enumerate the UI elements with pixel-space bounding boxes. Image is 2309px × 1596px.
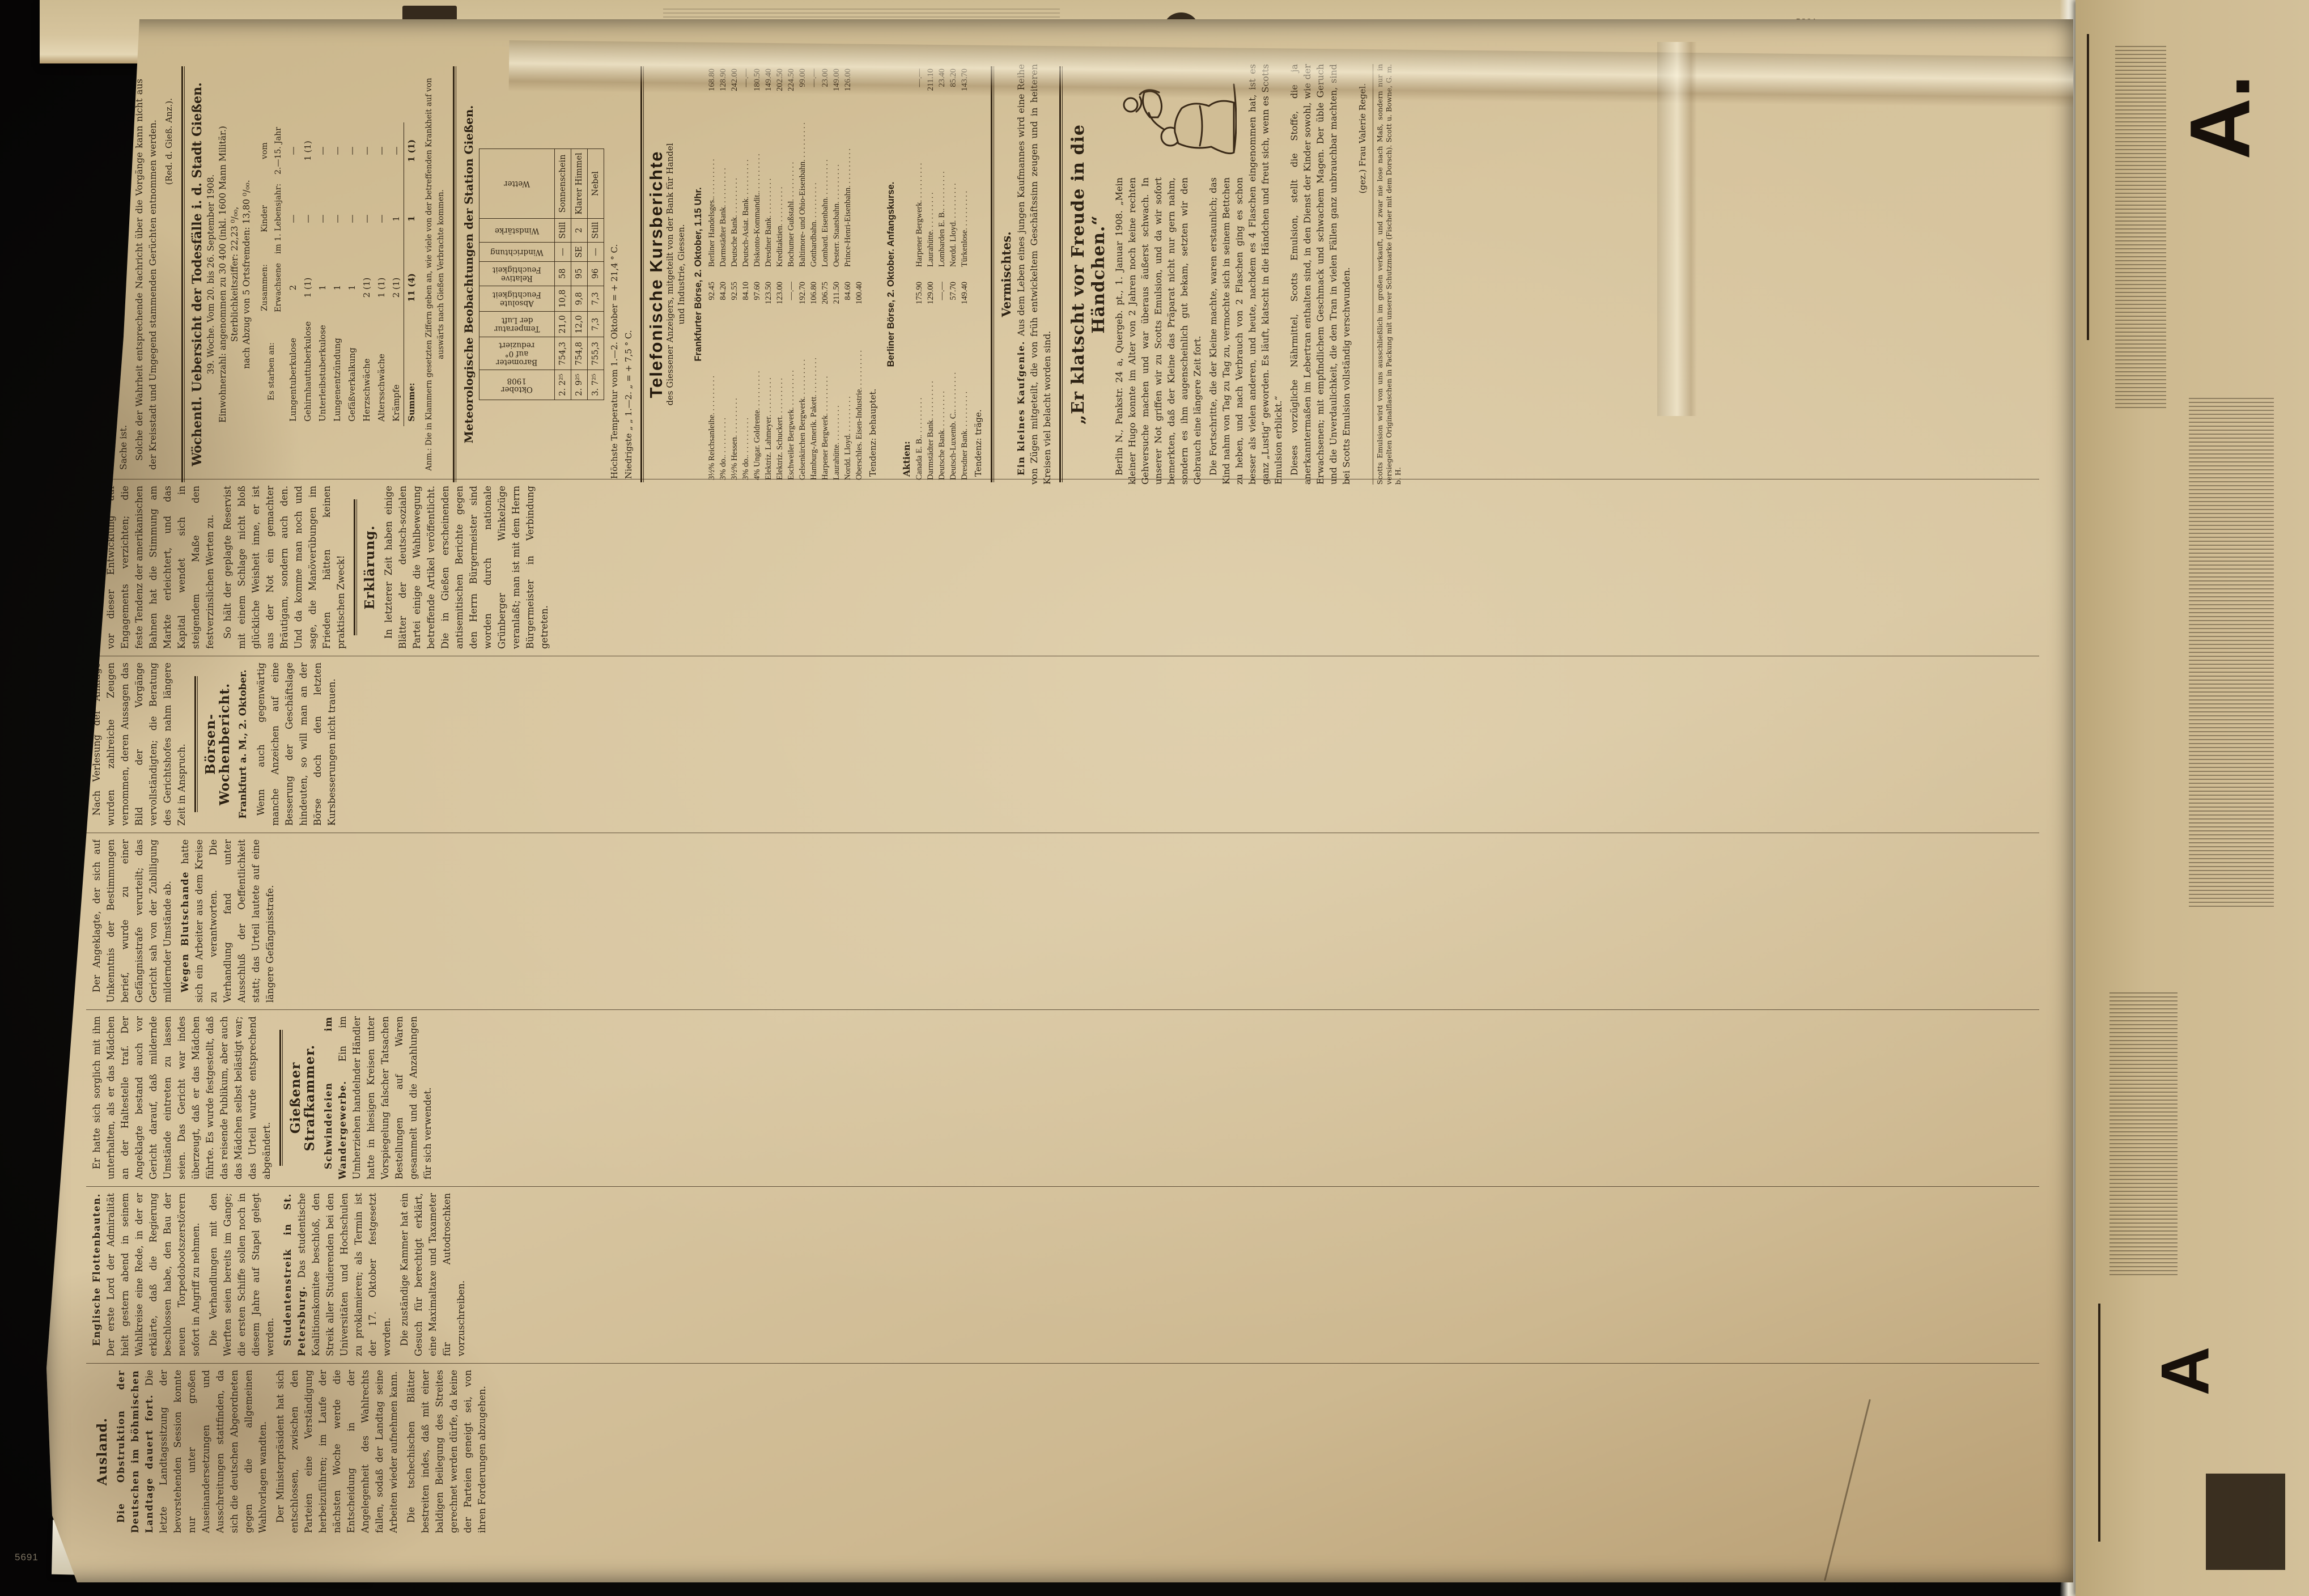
quote-name: Diskonto-Kommandit. bbox=[752, 193, 763, 267]
quote-value: 192.70 bbox=[797, 282, 808, 304]
todesfaelle-row: Gefäßverkalkung1—— bbox=[345, 122, 359, 426]
meteo-header-label: Temperatur der Luft bbox=[494, 316, 540, 333]
column-rule bbox=[86, 1363, 2039, 1364]
quote-name: Türkenlose bbox=[959, 230, 970, 267]
quote-value: —.— bbox=[808, 69, 820, 87]
meteo-cell: 10,8 bbox=[555, 286, 571, 311]
quote-value: —.— bbox=[936, 282, 948, 300]
article-paragraph: Die Verhandlungen mit den Werften seien … bbox=[206, 1193, 277, 1356]
meteo-cell: Still bbox=[555, 218, 571, 243]
quote-name: 4% Ungar. Goldrente bbox=[752, 410, 763, 480]
adjacent-page-right-edge: A. A bbox=[2075, 0, 2309, 1596]
quote-value: 149.00 bbox=[831, 69, 842, 91]
todesfaelle-cell: 2 (1) bbox=[359, 258, 374, 317]
ad-headline: „Er klatscht vor Freude in die Händchen.… bbox=[1068, 64, 1109, 485]
meteo-header-label: Barometer auf 0° reduziert bbox=[496, 341, 537, 366]
quote-dots: . . . . . . . . . . bbox=[948, 87, 959, 222]
todesfaelle-row: Altersschwäche1 (1)—— bbox=[374, 122, 389, 426]
newspaper-page: Ausland.Die Obstruktion der Deutschen im… bbox=[44, 19, 2073, 1582]
frankfurt-tendenz: Tendenz: behauptet. bbox=[866, 64, 880, 485]
quote-value: 57.70 bbox=[948, 282, 959, 300]
quote-value: 84.10 bbox=[740, 282, 752, 300]
kursberichte-subtitle: und Industrie, Giessen. bbox=[676, 64, 687, 485]
quote-name: Elektriz. Schuckert bbox=[774, 417, 786, 480]
meteo-cell: 9,8 bbox=[571, 286, 588, 311]
quote-dots: . . . . . . . . . . bbox=[959, 304, 970, 431]
meteo-row: 2. 2²⁵754,321,010,858—StillSonnenschein bbox=[555, 149, 571, 400]
ad-rule bbox=[2087, 34, 2089, 340]
quote-name: Nordd. Lloyd bbox=[842, 435, 854, 480]
quote-dots: . . . . . . . . . . bbox=[936, 87, 948, 211]
quote-value: 106.80 bbox=[808, 282, 820, 304]
quote-value: —.— bbox=[786, 282, 797, 300]
quote-name: Deutsch-Asiat. Bank bbox=[740, 198, 752, 267]
quote-row: Kreditaktien . . . . . . . . . .202.50 bbox=[774, 69, 786, 267]
meteo-cell: Klarer Himmel bbox=[571, 149, 588, 218]
page-content-rotated: Ausland.Die Obstruktion der Deutschen im… bbox=[50, 34, 2068, 1564]
quote-name: Baltimore- und Ohio-Eisenbahn bbox=[797, 162, 808, 267]
quote-row: Elektriz. Schuckert . . . . . . . . . .1… bbox=[774, 282, 786, 480]
block-divider bbox=[640, 66, 644, 482]
meteo-header-cell: Absolute Feuchtigkeit bbox=[479, 286, 555, 311]
quote-value: 123.00 bbox=[774, 282, 786, 304]
quote-row: Darmstädter Bank . . . . . . . . . .129.… bbox=[925, 282, 936, 480]
quote-value: 224.50 bbox=[786, 69, 797, 91]
quote-dots: . . . . . . . . . . bbox=[854, 304, 865, 389]
todesfaelle-row: Krämpfe2 (1)1— bbox=[389, 122, 404, 426]
block-divider bbox=[991, 66, 994, 482]
todesfaelle-footnote: Anm.: Die in Klammern gesetzten Ziffern … bbox=[423, 64, 447, 485]
todesfaelle-sum-cell: 11 (4) bbox=[404, 258, 419, 317]
quote-row: Baltimore- und Ohio-Eisenbahn . . . . . … bbox=[797, 69, 808, 267]
quote-row: Hamburg-Amerik. Pakett . . . . . . . . .… bbox=[808, 282, 820, 480]
meteo-cell: 21,0 bbox=[555, 312, 571, 337]
quote-value: 175.90 bbox=[914, 282, 925, 304]
meteo-cell: SE bbox=[571, 243, 588, 262]
quote-value: 168.80 bbox=[706, 69, 718, 91]
article-lead: Englische Flottenbauten. bbox=[91, 1193, 102, 1346]
article-paragraph: Wenn auch gegenwärtig manche Anzeichen a… bbox=[254, 663, 339, 826]
text-column-3: Er hatte sich sorglich mit ihm unterhalt… bbox=[90, 1016, 2035, 1179]
todesfaelle-cell: — bbox=[359, 179, 374, 258]
meteo-row: 2. 9²⁵754,812,09,895SE2Klarer Himmel bbox=[571, 149, 588, 400]
meteo-header-label: Windrichtung bbox=[490, 248, 544, 256]
quote-name: Lombard. Eisenbahn bbox=[820, 198, 831, 267]
quote-row: Deutsch-Luxemb. C. . . . . . . . . . .57… bbox=[948, 282, 959, 480]
quote-dots: . . . . . . . . . . bbox=[752, 91, 763, 193]
todesfaelle-table: Es starben an:Zusammen: ErwachseneKinder… bbox=[257, 122, 419, 426]
quote-row: Canada E. B. . . . . . . . . . .175.90 bbox=[914, 282, 925, 480]
quote-dots: . . . . . . . . . . bbox=[842, 91, 854, 188]
quote-dots: . . . . . . . . . . bbox=[820, 87, 831, 199]
section-heading: Gießener Strafkammer. bbox=[288, 1016, 317, 1179]
todesfaelle-cell: 1 (1) bbox=[300, 122, 315, 179]
column-rule bbox=[86, 656, 2039, 656]
column-rule bbox=[86, 833, 2039, 833]
quote-dots: . . . . . . . . . . bbox=[740, 87, 752, 199]
quote-dots: . . . . . . . . . . bbox=[948, 300, 959, 411]
article-paragraph: Englische Flottenbauten. Der erste Lord … bbox=[90, 1193, 203, 1356]
table-header-cell: vom 2.—15. Jahr bbox=[257, 122, 286, 179]
quote-value: 99.00 bbox=[797, 69, 808, 87]
quote-row: Dresdner Bank . . . . . . . . . .149.40 bbox=[959, 282, 970, 480]
meteo-cell: 7,3 bbox=[588, 312, 604, 337]
todesfaelle-meta-line: Sterblichkeitsziffer: 22,23 ⁰/₀₀, bbox=[229, 64, 241, 485]
column-rule bbox=[86, 1186, 2039, 1187]
todesfaelle-heading: Wöchentl. Uebersicht der Todesfälle i. d… bbox=[190, 64, 204, 485]
quote-value: 123.50 bbox=[763, 282, 774, 304]
meteo-cell: 58 bbox=[555, 261, 571, 286]
quote-row: Berliner Handelsges. . . . . . . . . . .… bbox=[706, 69, 718, 267]
todesfaelle-cell: — bbox=[315, 122, 330, 179]
quote-row: Harpener Bergwerk . . . . . . . . . .—.— bbox=[914, 69, 925, 267]
quote-name: Laurahütte bbox=[831, 444, 842, 480]
quote-row: Prince-Henri-Eisenbahn . . . . . . . . .… bbox=[842, 69, 854, 267]
block-divider bbox=[1059, 66, 1063, 482]
text-column-2: Englische Flottenbauten. Der erste Lord … bbox=[90, 1193, 2035, 1356]
article-paragraph: Studentenstreik in St. Petersburg. Das s… bbox=[281, 1193, 394, 1356]
quote-value: —.— bbox=[740, 69, 752, 87]
berlin-tendenz: Tendenz: träge. bbox=[971, 64, 985, 485]
berlin-quote-list: Canada E. B. . . . . . . . . . .175.90Da… bbox=[914, 64, 970, 485]
meteo-header-cell: Relative Feuchtigkeit bbox=[479, 261, 555, 286]
article-lead: Wegen Blutschande bbox=[180, 864, 190, 993]
quote-name: 3½% Reichsanleihe bbox=[706, 415, 718, 480]
meteo-header-label: Absolute Feuchtigkeit bbox=[493, 290, 541, 307]
quote-row: Diskonto-Kommandit. . . . . . . . . . .1… bbox=[752, 69, 763, 267]
quote-dots: . . . . . . . . . . bbox=[706, 300, 718, 415]
quote-row: 3½% Reichsanleihe . . . . . . . . . .92.… bbox=[706, 282, 718, 480]
quote-name: Oberschles. Eisen-Industrie bbox=[854, 389, 865, 480]
todesfaelle-cell: — bbox=[300, 179, 315, 258]
quote-name: 3% do. bbox=[740, 457, 752, 480]
meteo-summary-line: Niedrigste „ „ 1.—2. „ = + 7,5 ° C. bbox=[623, 70, 635, 479]
quote-value: 211.10 bbox=[925, 69, 936, 91]
quote-dots: . . . . . . . . . . bbox=[936, 300, 948, 430]
quote-dots: . . . . . . . . . . bbox=[774, 304, 786, 417]
article-paragraph: Die tschechischen Blätter bestreiten ind… bbox=[404, 1370, 489, 1533]
text-column-1: Ausland.Die Obstruktion der Deutschen im… bbox=[90, 1370, 2035, 1533]
quote-value: 242.00 bbox=[729, 69, 740, 91]
quote-dots: . . . . . . . . . . bbox=[797, 304, 808, 398]
todesfaelle-cell: — bbox=[374, 179, 389, 258]
todesfaelle-cell: Gehirnhauttuberkulose bbox=[300, 317, 315, 426]
table-header-cell: Es starben an: bbox=[257, 317, 286, 426]
quote-name: 3% do. bbox=[718, 457, 729, 480]
todesfaelle-cell: — bbox=[345, 179, 359, 258]
todesfaelle-cell: Herzschwäche bbox=[359, 317, 374, 426]
article-paragraph: Die Obstruktion der Deutschen im böhmisc… bbox=[114, 1370, 270, 1533]
todesfaelle-row: Lungenentzündung1—— bbox=[330, 122, 345, 426]
table-header-row: Es starben an:Zusammen: ErwachseneKinder… bbox=[257, 122, 286, 426]
quote-row: Elektriz. Lahmeyer . . . . . . . . . .12… bbox=[763, 282, 774, 480]
berlin-boerse-header: Berliner Börse, 2. Oktober. Anfangskurse… bbox=[884, 64, 898, 485]
article-paragraph: Er hatte sich sorglich mit ihm unterhalt… bbox=[90, 1016, 274, 1179]
quote-name: Berliner Handelsges. bbox=[706, 198, 718, 267]
section-heading: Ausland. bbox=[95, 1370, 109, 1533]
quote-dots: . . . . . . . . . . bbox=[786, 91, 797, 201]
frankfurt-boerse-header: Frankfurter Börse, 2. Oktober, 1.15 Uhr. bbox=[691, 64, 705, 485]
meteo-cell: 12,0 bbox=[571, 312, 588, 337]
kursberichte-subtitle: des Giessener Anzeigers, mitgeteilt von … bbox=[664, 64, 676, 485]
meteo-cell: 2. 2²⁵ bbox=[555, 370, 571, 400]
section-heading: Börsen-Wochenbericht. bbox=[203, 663, 232, 826]
quote-value: 211.50 bbox=[831, 282, 842, 304]
quote-value: 128.90 bbox=[718, 69, 729, 91]
quote-row: Dresdner Bank . . . . . . . . . .149.40 bbox=[763, 69, 774, 267]
erklaerung-paragraph: Solche der Wahrheit entsprechende Nachri… bbox=[133, 79, 160, 470]
todesfaelle-cell: Gefäßverkalkung bbox=[345, 317, 359, 426]
quote-name: Eschweiler Bergwerk bbox=[786, 409, 797, 480]
quote-name: Hamburg-Amerik. Pakett bbox=[808, 397, 820, 480]
quote-row: Oesterr. Staatsbahn . . . . . . . . . .1… bbox=[831, 69, 842, 267]
quote-name: Lombarden E. B. bbox=[936, 210, 948, 267]
quote-name: Gelsenkirchen Bergwerk bbox=[797, 398, 808, 480]
quote-dots: . . . . . . . . . . bbox=[718, 300, 729, 457]
quote-dots: . . . . . . . . . . bbox=[914, 304, 925, 437]
meteo-cell: 754,3 bbox=[555, 337, 571, 370]
erklaerung-signature: (Red. d. Gieß. Anz.). bbox=[162, 79, 176, 470]
aktien-label: Aktien: bbox=[900, 64, 914, 485]
quote-value: 149.40 bbox=[959, 282, 970, 304]
quote-value: —.— bbox=[914, 69, 925, 87]
todesfaelle-cell: Altersschwäche bbox=[374, 317, 389, 426]
section-divider bbox=[279, 1030, 283, 1166]
meteo-cell: 755,3 bbox=[588, 337, 604, 370]
article-paragraph: Die zuständige Kammer hat ein Gesuch für… bbox=[397, 1193, 468, 1356]
meteo-cell: 96 bbox=[588, 261, 604, 286]
quote-row: Laurahütte . . . . . . . . . .211.10 bbox=[925, 69, 936, 267]
quote-dots: . . . . . . . . . . bbox=[763, 91, 774, 218]
meteo-header-label: Relative Feuchtigkeit bbox=[493, 265, 541, 282]
todesfaelle-cell: — bbox=[315, 179, 330, 258]
quote-value: 126.00 bbox=[842, 69, 854, 91]
quote-name: Kreditaktien bbox=[774, 226, 786, 267]
quote-value: 23.40 bbox=[936, 69, 948, 87]
meteo-cell: 7,3 bbox=[588, 286, 604, 311]
quote-row: Deutsche Bank . . . . . . . . . .242.00 bbox=[729, 69, 740, 267]
todesfaelle-cell: — bbox=[286, 122, 300, 179]
table-header-cell: Zusammen: Erwachsene bbox=[257, 258, 286, 317]
quote-row: 4% Ungar. Goldrente . . . . . . . . . .9… bbox=[752, 282, 763, 480]
ad-rule bbox=[2098, 1304, 2100, 1542]
quote-row: Eschweiler Bergwerk . . . . . . . . . .—… bbox=[786, 282, 797, 480]
todesfaelle-sum-cell: Summe: bbox=[404, 317, 419, 426]
todesfaelle-sum-cell: 1 (1) bbox=[404, 122, 419, 179]
vermischtes-item: Ein kleines Kaufgenie. Aus dem Leben ein… bbox=[1015, 64, 1054, 485]
kursberichte-display-heading: Telefonische Kursberichte bbox=[650, 64, 663, 485]
todesfaelle-row: Unterleibstuberkulose1—— bbox=[315, 122, 330, 426]
todesfaelle-cell: — bbox=[330, 122, 345, 179]
quote-dots: . . . . . . . . . . bbox=[820, 304, 831, 415]
vermischtes-heading: Vermischtes. bbox=[1000, 64, 1013, 485]
quote-value: 180.50 bbox=[752, 69, 763, 91]
quote-dots: . . . . . . . . . . bbox=[925, 91, 936, 231]
quote-dots: . . . . . . . . . . bbox=[729, 300, 740, 438]
quote-row: Nordd. Lloyd . . . . . . . . . .85.20 bbox=[948, 69, 959, 267]
quote-name: Harpener Bergwerk bbox=[914, 202, 925, 267]
quote-value: 85.20 bbox=[948, 69, 959, 87]
article-lead: Schwindeleien im Wandergewerbe. bbox=[323, 1016, 348, 1179]
ad-microtext bbox=[2189, 397, 2274, 907]
quote-dots: . . . . . . . . . . bbox=[774, 91, 786, 226]
ad-big-letter-2: A bbox=[2146, 1347, 2224, 1396]
ad-body: Berlin N., Pankstr. 24 a, Quergeb. pt., … bbox=[1113, 64, 1353, 485]
quote-name: Darmstädter Bank bbox=[718, 207, 729, 267]
quote-name: Deutsch-Luxemb. C. bbox=[948, 411, 959, 480]
quote-value: 149.40 bbox=[763, 69, 774, 91]
quote-row: Gotthardbahn . . . . . . . . . .—.— bbox=[808, 69, 820, 267]
meteo-table: Oktober 1908Barometer auf 0° reduziertTe… bbox=[479, 148, 604, 400]
quote-row: Deutsche Bank . . . . . . . . . .—.— bbox=[936, 282, 948, 480]
meteo-cell: 2 bbox=[571, 218, 588, 243]
quote-dots: . . . . . . . . . . bbox=[925, 304, 936, 420]
quote-row: Darmstädter Bank . . . . . . . . . .128.… bbox=[718, 69, 729, 267]
quote-row: Türkenlose . . . . . . . . . .143.70 bbox=[959, 69, 970, 267]
meteo-header-cell: Windrichtung bbox=[479, 243, 555, 262]
quote-row: Lombard. Eisenbahn . . . . . . . . . .23… bbox=[820, 69, 831, 267]
quote-value: 206.75 bbox=[820, 282, 831, 304]
text-column-5: Nach Verlesung der Anklage wurden zahlre… bbox=[90, 663, 2035, 826]
quote-name: Elektriz. Lahmeyer bbox=[763, 417, 774, 480]
quote-value: 92.45 bbox=[706, 282, 718, 300]
todesfaelle-cell: — bbox=[374, 122, 389, 179]
text-column-4: Der Angeklagte, der sich auf Unkenntnis … bbox=[90, 839, 2035, 1003]
meteo-header-row: Oktober 1908Barometer auf 0° reduziertTe… bbox=[479, 149, 555, 400]
todesfaelle-meta-line: Einwohnerzahl: angenommen zu 30 400 (ink… bbox=[217, 64, 229, 485]
quote-dots: . . . . . . . . . . bbox=[797, 87, 808, 162]
ad-smallprint: Scotts Emulsion wird von uns ausschließl… bbox=[1373, 64, 1403, 485]
quote-row: Gelsenkirchen Bergwerk . . . . . . . . .… bbox=[797, 282, 808, 480]
todesfaelle-cell: 1 (1) bbox=[300, 258, 315, 317]
meteo-cell: 95 bbox=[571, 261, 588, 286]
meteo-header-cell: Windstärke bbox=[479, 218, 555, 243]
quote-row: 3% do. . . . . . . . . . .84.20 bbox=[718, 282, 729, 480]
quote-row: Bochumer Gußstahl . . . . . . . . . .224… bbox=[786, 69, 797, 267]
section-divider bbox=[354, 499, 357, 635]
todesfaelle-cell: Lungentuberkulose bbox=[286, 317, 300, 426]
column-rule bbox=[86, 1009, 2039, 1010]
quote-name: Oesterr. Staatsbahn bbox=[831, 203, 842, 267]
quote-name: Nordd. Lloyd bbox=[948, 222, 959, 267]
quote-dots: . . . . . . . . . . bbox=[729, 91, 740, 217]
todesfaelle-cell: 2 bbox=[286, 258, 300, 317]
todesfaelle-cell: 1 bbox=[345, 258, 359, 317]
quote-value: 143.70 bbox=[959, 69, 970, 91]
todesfaelle-sum-cell: 1 bbox=[404, 179, 419, 258]
text-column-6: Die treibenden Kräfte müssen vor dieser … bbox=[90, 486, 2035, 649]
quote-name: Dresdner Bank bbox=[763, 218, 774, 267]
quote-name: Deutsche Bank bbox=[936, 430, 948, 480]
quote-dots: . . . . . . . . . . bbox=[752, 300, 763, 410]
quote-name: Prince-Henri-Eisenbahn bbox=[842, 188, 854, 267]
block-divider bbox=[453, 66, 456, 482]
article-lead: Die Obstruktion der Deutschen im böhmisc… bbox=[116, 1370, 155, 1533]
quote-value: 202.50 bbox=[774, 69, 786, 91]
quote-dots: . . . . . . . . . . bbox=[914, 87, 925, 202]
todesfaelle-cell: Unterleibstuberkulose bbox=[315, 317, 330, 426]
meteo-cell: Sonnenschein bbox=[555, 149, 571, 218]
quote-dots: . . . . . . . . . . bbox=[808, 87, 820, 222]
todesfaelle-cell: — bbox=[345, 122, 359, 179]
meteo-cell: 754,8 bbox=[571, 337, 588, 370]
ad-microtext bbox=[2115, 45, 2166, 408]
todesfaelle-cell: — bbox=[359, 122, 374, 179]
quote-name: Canada E. B. bbox=[914, 436, 925, 480]
section-subheading: Frankfurt a. M., 2. Oktober. bbox=[236, 663, 251, 826]
article-paragraph: In letzterer Zeit haben einige Blätter d… bbox=[381, 486, 551, 649]
quote-row: Nordd. Lloyd . . . . . . . . . .84.60 bbox=[842, 282, 854, 480]
ad-big-letter: A. bbox=[2171, 75, 2269, 160]
meteo-header-cell: Oktober 1908 bbox=[479, 370, 555, 400]
section-heading: Erklärung. bbox=[363, 486, 377, 649]
quote-dots: . . . . . . . . . . bbox=[740, 300, 752, 457]
todesfaelle-cell: 2 (1) bbox=[389, 258, 404, 317]
quote-name: Darmstädter Bank bbox=[925, 420, 936, 480]
article-paragraph: Schwindeleien im Wandergewerbe. Ein im U… bbox=[321, 1016, 435, 1179]
article-paragraph: So hält der geplagte Reservist mit einem… bbox=[220, 486, 348, 649]
quote-name: Gotthardbahn bbox=[808, 222, 820, 267]
quote-value: 100.40 bbox=[854, 282, 865, 304]
quote-dots: . . . . . . . . . . bbox=[842, 300, 854, 435]
meteo-header-label: Oktober 1908 bbox=[501, 376, 533, 393]
quote-dots: . . . . . . . . . . bbox=[706, 91, 718, 198]
todesfaelle-cell: — bbox=[389, 122, 404, 179]
quote-value: 84.60 bbox=[842, 282, 854, 300]
article-paragraph: Der Ministerpräsident hat sich entschlos… bbox=[273, 1370, 401, 1533]
todesfaelle-cell: 1 bbox=[315, 258, 330, 317]
quote-dots: . . . . . . . . . . bbox=[763, 304, 774, 417]
article-lead: Studentenstreik in St. Petersburg. bbox=[282, 1193, 307, 1356]
quote-dots: . . . . . . . . . . bbox=[808, 304, 820, 397]
quote-dots: . . . . . . . . . . bbox=[959, 91, 970, 230]
quote-value: 97.60 bbox=[752, 282, 763, 300]
quote-name: Harpener Bergwerk bbox=[820, 415, 831, 480]
quote-dots: . . . . . . . . . . bbox=[786, 300, 797, 409]
section-divider bbox=[194, 676, 198, 812]
meteo-header-cell: Temperatur der Luft bbox=[479, 312, 555, 337]
quote-name: 3½% Hessen bbox=[729, 437, 740, 480]
todesfaelle-row: Herzschwäche2 (1)—— bbox=[359, 122, 374, 426]
todesfaelle-cell: Lungenentzündung bbox=[330, 317, 345, 426]
meteo-cell: 3. 7²⁵ bbox=[588, 370, 604, 400]
archival-number: 5691 bbox=[15, 1552, 39, 1563]
todesfaelle-cell: — bbox=[286, 179, 300, 258]
vermischtes-block: Vermischtes.Ein kleines Kaufgenie. Aus d… bbox=[1000, 64, 1054, 485]
todesfaelle-row: Gehirnhauttuberkulose1 (1)—1 (1) bbox=[300, 122, 315, 426]
quote-value: 23.00 bbox=[820, 69, 831, 87]
quote-dots: . . . . . . . . . . bbox=[718, 91, 729, 207]
ad-blob bbox=[2206, 1474, 2285, 1570]
todesfaelle-cell: Krämpfe bbox=[389, 317, 404, 426]
todesfaelle-meta-line: 39. Woche. Vom 20. bis 26. September 190… bbox=[205, 64, 217, 485]
meteo-header-cell: Wetter bbox=[479, 149, 555, 218]
meteo-cell: Still bbox=[588, 218, 604, 243]
meteo-header-label: Wetter bbox=[504, 179, 530, 188]
quote-row: Oberschles. Eisen-Industrie . . . . . . … bbox=[854, 282, 865, 480]
table-header-cell: Kinder im 1. Lebensjahr: bbox=[257, 179, 286, 258]
todesfaelle-row: Lungentuberkulose2—— bbox=[286, 122, 300, 426]
quote-value: 129.00 bbox=[925, 282, 936, 304]
quote-dots: . . . . . . . . . . bbox=[831, 304, 842, 444]
todesfaelle-cell: 1 bbox=[330, 258, 345, 317]
meteo-header-cell: Barometer auf 0° reduziert bbox=[479, 337, 555, 370]
meteo-cell: Nebel bbox=[588, 149, 604, 218]
ad-microtext bbox=[2109, 992, 2178, 1275]
quote-value: 84.20 bbox=[718, 282, 729, 300]
scotts-emulsion-ad: „Er klatscht vor Freude in die Händchen.… bbox=[1068, 64, 1403, 485]
todesfaelle-cell: 1 (1) bbox=[374, 258, 389, 317]
